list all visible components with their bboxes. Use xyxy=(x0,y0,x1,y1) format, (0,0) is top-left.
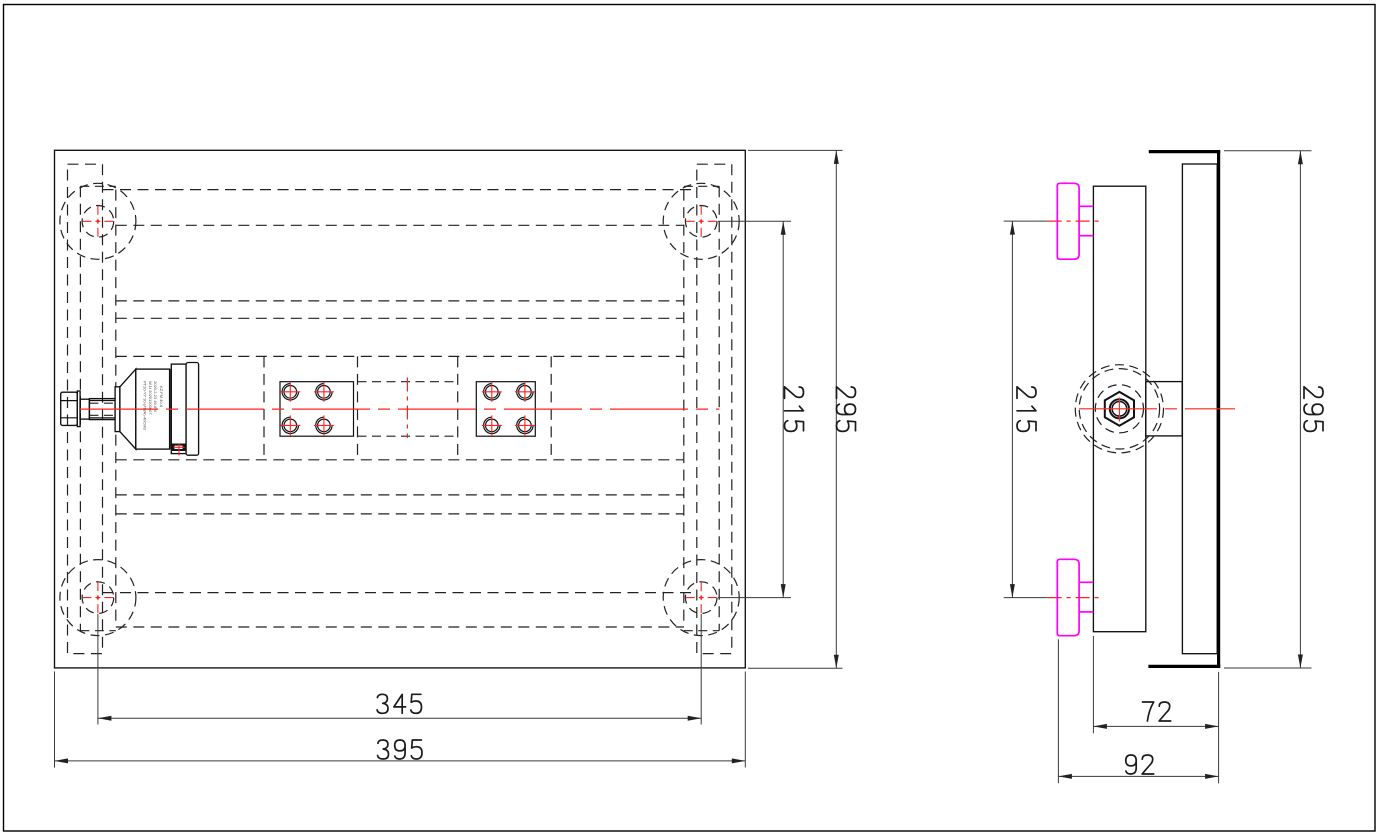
svg-text:KZ.FM 40-6: KZ.FM 40-6 xyxy=(159,386,164,408)
svg-text:2020-2-23 40.6W: 2020-2-23 40.6W xyxy=(153,381,158,412)
svg-text:PT20-YY 30-(#N/A)-40CM3: PT20-YY 30-(#N/A)-40CM3 xyxy=(143,381,148,431)
svg-text:W.1t 20201203007: W.1t 20201203007 xyxy=(148,381,153,415)
